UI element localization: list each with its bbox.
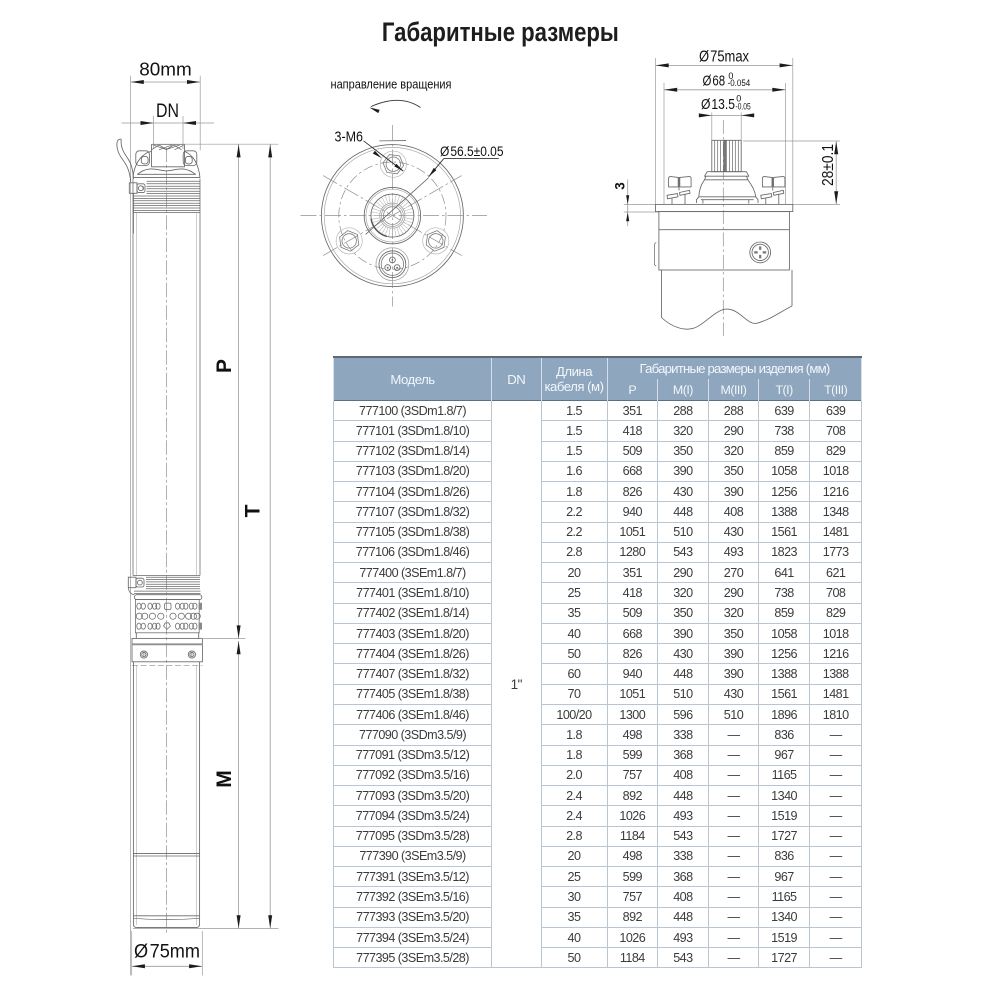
svg-text:Ø 75max: Ø 75max [699,49,749,66]
svg-text:T: T [242,504,265,517]
svg-text:3-М6: 3-М6 [335,130,364,146]
svg-text:80mm: 80mm [139,59,192,80]
svg-text:Ø 56.5±0.05: Ø 56.5±0.05 [440,144,504,160]
svg-text:M: M [213,770,236,788]
svg-text:P: P [213,359,236,373]
svg-text:-0.05: -0.05 [736,102,751,112]
svg-text:28±0.1: 28±0.1 [820,144,837,186]
svg-text:-0.054: -0.054 [728,78,751,88]
svg-text:направление вращения: направление вращения [331,77,452,91]
svg-text:Ø 13.5: Ø 13.5 [701,97,735,113]
svg-text:DN: DN [156,100,179,122]
svg-text:3: 3 [613,182,628,190]
svg-text:Ø 75mm: Ø 75mm [134,942,200,963]
svg-text:Ø 68: Ø 68 [703,73,726,89]
